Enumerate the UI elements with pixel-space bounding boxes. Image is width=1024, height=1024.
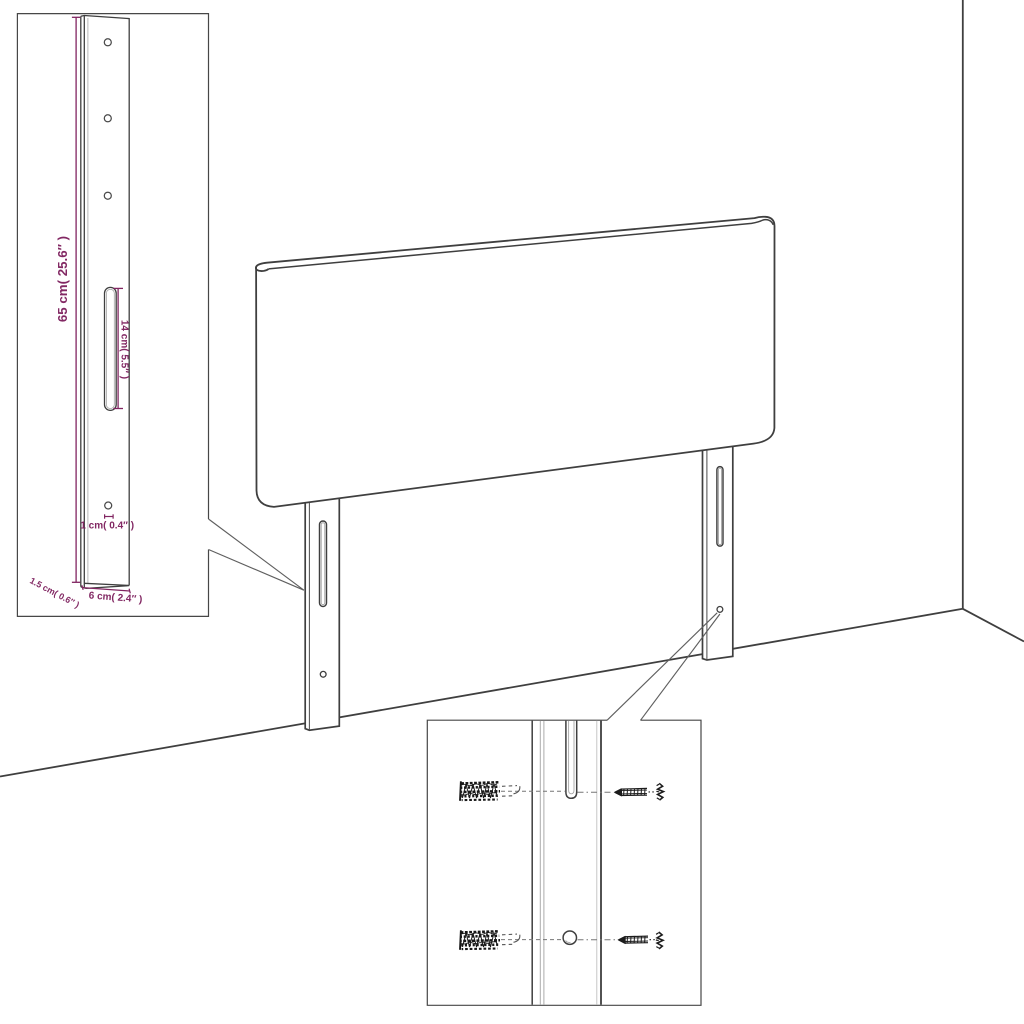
svg-text:14 cm( 5.5″ ): 14 cm( 5.5″ ) (118, 320, 129, 379)
svg-text:65 cm( 25.6″ ): 65 cm( 25.6″ ) (55, 236, 70, 322)
svg-text:1 cm( 0.4″ ): 1 cm( 0.4″ ) (80, 521, 134, 532)
